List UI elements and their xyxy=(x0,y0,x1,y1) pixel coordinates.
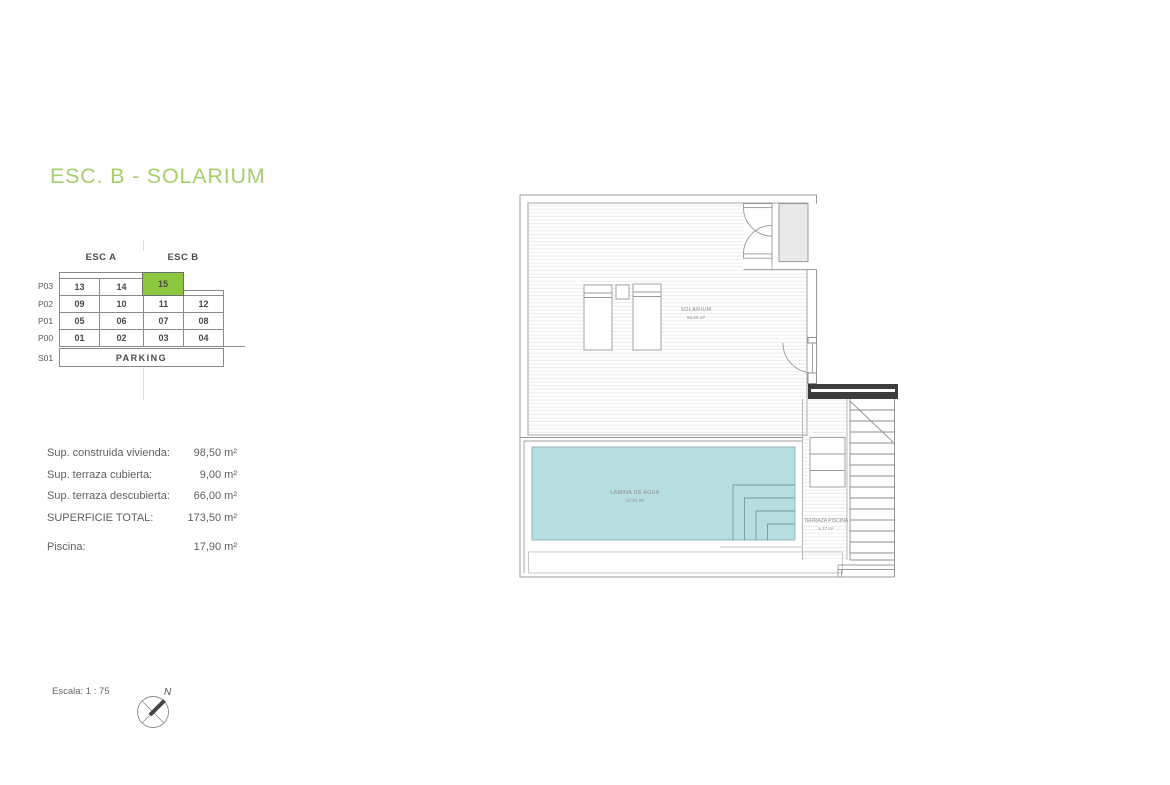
unit-cell[interactable]: 12 xyxy=(183,295,224,313)
unit-cell[interactable]: 04 xyxy=(183,329,224,347)
parking-cell[interactable]: PARKING xyxy=(59,348,224,367)
surface-label: Sup. terraza cubierta: xyxy=(47,469,152,481)
unit-cell[interactable]: 14 xyxy=(99,278,144,296)
unit-cell[interactable]: 05 xyxy=(59,312,100,330)
north-compass-icon: N xyxy=(130,682,178,732)
solarium-label: SOLARIUM xyxy=(680,307,711,313)
row-label-p03: P03 xyxy=(38,281,57,291)
unit-cell[interactable]: 07 xyxy=(143,312,184,330)
pool-label: LAMINA DE AGUA xyxy=(610,490,659,496)
pool-area: 17,91 m² xyxy=(626,498,645,503)
surface-label: Piscina: xyxy=(47,541,86,553)
surface-label: Sup. terraza descubierta: xyxy=(47,490,170,502)
stair-bulkhead xyxy=(779,204,808,262)
staircase xyxy=(850,399,895,577)
unit-cell[interactable]: 10 xyxy=(99,295,144,313)
terrace-label: TERRAZA PISCINA xyxy=(804,518,849,524)
unit-cell[interactable]: 03 xyxy=(143,329,184,347)
unit-cell[interactable]: 02 xyxy=(99,329,144,347)
fold-line xyxy=(143,368,144,400)
row-label-p01: P01 xyxy=(38,316,57,326)
surface-row: Sup. terraza cubierta: 9,00 m² xyxy=(47,469,237,481)
section-wall-bar xyxy=(808,384,898,399)
surface-value: 9,00 m² xyxy=(200,469,237,481)
floor-plan: SOLARIUM 66,00 m² LAMINA DE AGUA 17,91 m… xyxy=(515,188,905,583)
unit-cell[interactable]: 09 xyxy=(59,295,100,313)
row-label-s01: S01 xyxy=(38,353,57,363)
surface-value: 98,50 m² xyxy=(194,447,237,459)
scale-label: Escala: 1 : 75 xyxy=(52,686,110,697)
page-title: ESC. B - SOLARIUM xyxy=(50,164,266,189)
units-matrix: ESC A ESC B P03 P02 P01 P00 S01 13 14 15… xyxy=(38,250,252,372)
surface-value: 66,00 m² xyxy=(194,490,237,502)
terrace-area: 6,17 m² xyxy=(819,526,834,531)
col-header-esc-b: ESC B xyxy=(143,252,223,264)
surface-row: Sup. construida vivienda: 98,50 m² xyxy=(47,447,237,459)
col-header-esc-a: ESC A xyxy=(59,252,143,264)
unit-cell-selected[interactable]: 15 xyxy=(142,272,184,296)
fold-line xyxy=(143,240,144,251)
row-label-p02: P02 xyxy=(38,299,57,309)
north-letter: N xyxy=(164,687,172,698)
unit-cell[interactable]: 13 xyxy=(59,278,100,296)
row-label-p00: P00 xyxy=(38,333,57,343)
unit-cell[interactable]: 08 xyxy=(183,312,224,330)
surface-value: 173,50 m² xyxy=(187,512,237,524)
surface-row: Piscina: 17,90 m² xyxy=(47,541,237,553)
surface-label: SUPERFICIE TOTAL: xyxy=(47,512,153,524)
ground-line xyxy=(59,346,245,347)
unit-cell[interactable]: 01 xyxy=(59,329,100,347)
unit-cell[interactable]: 06 xyxy=(99,312,144,330)
surface-row: Sup. terraza descubierta: 66,00 m² xyxy=(47,490,237,502)
solarium-area: 66,00 m² xyxy=(687,315,706,320)
terrace-steps xyxy=(810,438,845,488)
pool xyxy=(532,447,795,540)
unit-cell[interactable]: 11 xyxy=(143,295,184,313)
surface-value: 17,90 m² xyxy=(194,541,237,553)
surface-label: Sup. construida vivienda: xyxy=(47,447,170,459)
surface-row: SUPERFICIE TOTAL: 173,50 m² xyxy=(47,512,237,524)
